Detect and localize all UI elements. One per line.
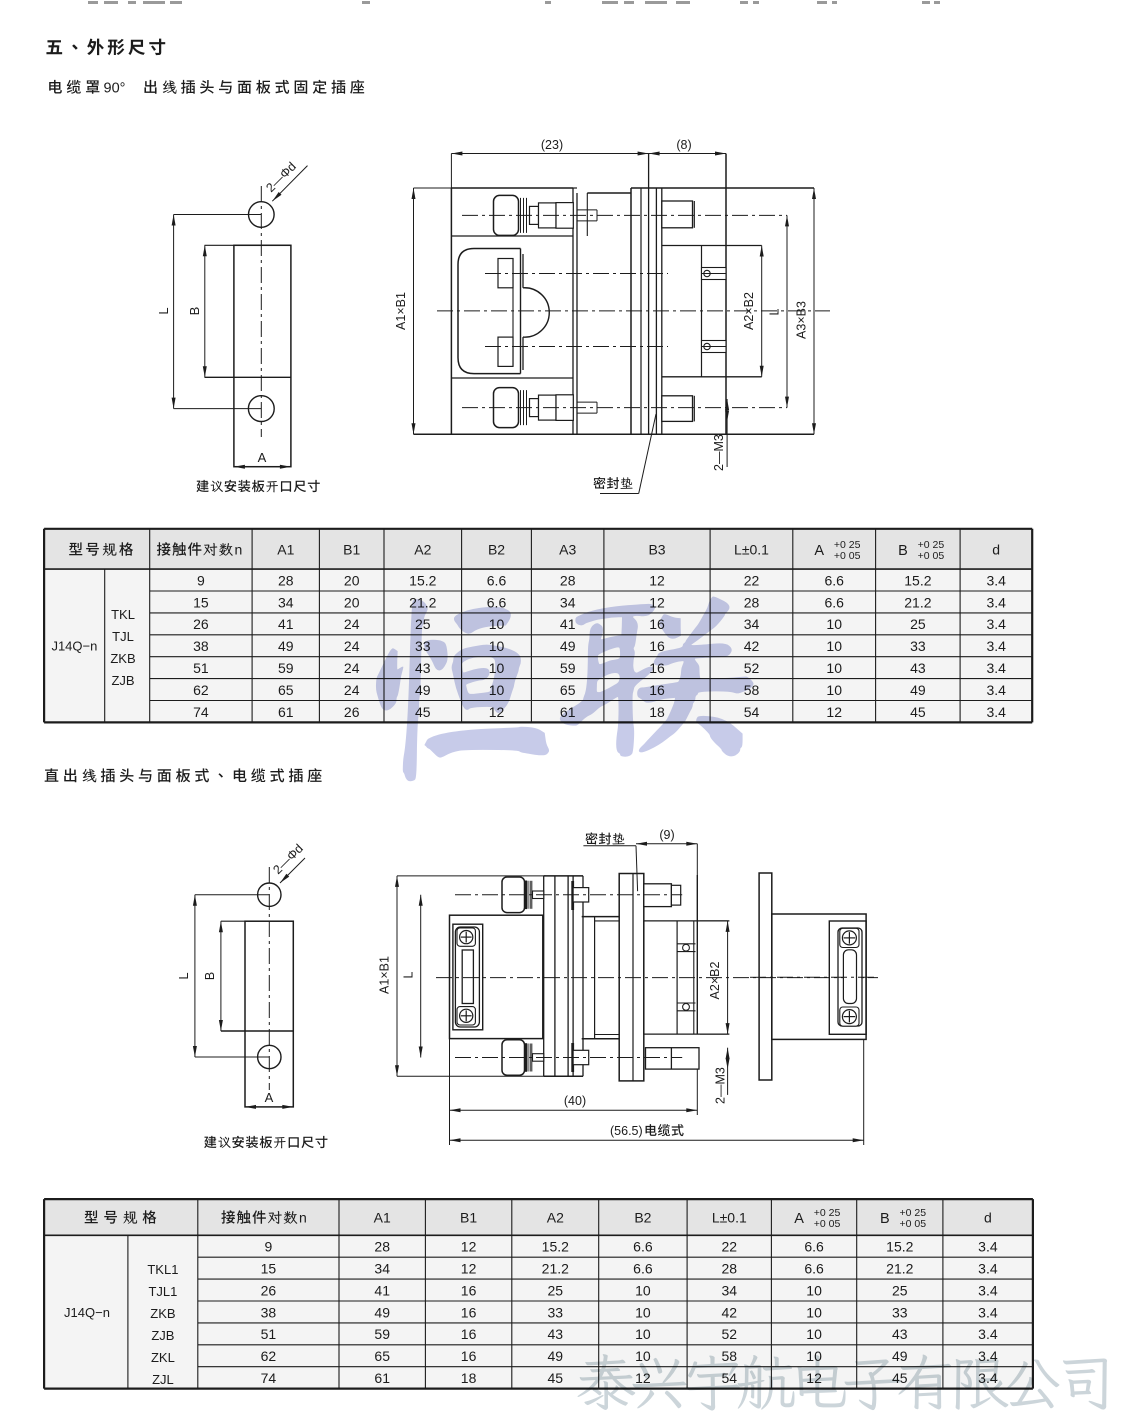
- svg-text:3.4: 3.4: [978, 1304, 998, 1320]
- svg-text:51: 51: [193, 660, 209, 676]
- svg-text:43: 43: [892, 1326, 908, 1342]
- svg-text:9: 9: [265, 1239, 273, 1255]
- svg-text:45: 45: [892, 1370, 908, 1386]
- svg-text:25: 25: [548, 1282, 564, 1298]
- svg-text:A: A: [794, 1211, 804, 1227]
- svg-text:TKL: TKL: [111, 607, 135, 622]
- svg-text:74: 74: [193, 704, 209, 720]
- svg-text:A3: A3: [559, 542, 576, 558]
- svg-text:18: 18: [649, 704, 665, 720]
- svg-text:34: 34: [278, 594, 294, 610]
- svg-text:42: 42: [744, 638, 760, 654]
- svg-text:54: 54: [722, 1370, 738, 1386]
- svg-text:A2: A2: [547, 1210, 564, 1226]
- svg-text:34: 34: [722, 1282, 738, 1298]
- svg-text:51: 51: [261, 1326, 277, 1342]
- svg-text:A1×B1: A1×B1: [378, 956, 392, 994]
- svg-text:21.2: 21.2: [886, 1261, 913, 1277]
- svg-text:2—M3: 2—M3: [714, 1067, 728, 1104]
- svg-text:24: 24: [344, 682, 360, 698]
- svg-text:L: L: [176, 972, 191, 979]
- svg-text:ZJL: ZJL: [152, 1372, 174, 1387]
- svg-text:16: 16: [461, 1304, 477, 1320]
- svg-text:65: 65: [374, 1348, 390, 1364]
- svg-text:62: 62: [193, 682, 209, 698]
- svg-text:B1: B1: [460, 1210, 477, 1226]
- svg-text:10: 10: [806, 1348, 822, 1364]
- svg-text:6.6: 6.6: [633, 1261, 653, 1277]
- svg-text:3.4: 3.4: [986, 616, 1006, 632]
- svg-text:49: 49: [548, 1348, 564, 1364]
- svg-text:(9): (9): [659, 828, 674, 842]
- svg-text:ZKB: ZKB: [150, 1306, 175, 1321]
- svg-text:B: B: [187, 307, 202, 316]
- svg-text:10: 10: [635, 1326, 651, 1342]
- svg-text:10: 10: [635, 1304, 651, 1320]
- svg-text:3.4: 3.4: [978, 1282, 998, 1298]
- svg-text:52: 52: [722, 1326, 738, 1342]
- svg-text:L: L: [156, 307, 171, 314]
- svg-text:61: 61: [374, 1370, 390, 1386]
- svg-text:65: 65: [560, 682, 576, 698]
- svg-text:A2×B2: A2×B2: [708, 962, 722, 1000]
- svg-text:A: A: [258, 450, 267, 465]
- svg-text:74: 74: [261, 1370, 277, 1386]
- svg-text:28: 28: [278, 572, 294, 588]
- svg-text:21.2: 21.2: [904, 594, 931, 610]
- svg-text:59: 59: [560, 660, 576, 676]
- svg-text:+0 05: +0 05: [918, 550, 945, 562]
- svg-text:3.4: 3.4: [986, 704, 1006, 720]
- svg-text:ZJB: ZJB: [151, 1328, 174, 1343]
- svg-text:L±0.1: L±0.1: [734, 542, 769, 558]
- svg-text:(23): (23): [541, 138, 563, 152]
- svg-text:26: 26: [344, 704, 360, 720]
- svg-text:10: 10: [826, 682, 842, 698]
- svg-text:24: 24: [344, 638, 360, 654]
- svg-text:62: 62: [261, 1348, 277, 1364]
- svg-text:B2: B2: [488, 542, 505, 558]
- svg-text:+0 05: +0 05: [834, 550, 861, 562]
- svg-text:10: 10: [826, 616, 842, 632]
- svg-text:6.6: 6.6: [804, 1239, 824, 1255]
- svg-text:25: 25: [910, 616, 926, 632]
- svg-text:58: 58: [722, 1348, 738, 1364]
- svg-text:26: 26: [261, 1282, 277, 1298]
- svg-text:ZKB: ZKB: [110, 651, 135, 666]
- svg-text:3.4: 3.4: [978, 1326, 998, 1342]
- svg-text:TJL: TJL: [112, 629, 134, 644]
- svg-text:(56.5): (56.5): [610, 1124, 643, 1138]
- svg-text:(8): (8): [676, 138, 691, 152]
- svg-text:B3: B3: [648, 542, 665, 558]
- svg-text:15.2: 15.2: [409, 572, 436, 588]
- svg-text:TJL1: TJL1: [148, 1284, 177, 1299]
- svg-text:45: 45: [548, 1370, 564, 1386]
- svg-text:49: 49: [910, 682, 926, 698]
- svg-text:49: 49: [560, 638, 576, 654]
- svg-text:41: 41: [560, 616, 576, 632]
- svg-text:18: 18: [461, 1370, 477, 1386]
- svg-text:A2×B2: A2×B2: [742, 292, 756, 330]
- svg-text:6.6: 6.6: [824, 594, 844, 610]
- svg-text:28: 28: [560, 572, 576, 588]
- svg-text:B: B: [203, 972, 217, 980]
- svg-text:ZKL: ZKL: [151, 1350, 175, 1365]
- svg-text:10: 10: [635, 1282, 651, 1298]
- svg-text:L: L: [402, 971, 416, 978]
- svg-text:41: 41: [278, 616, 294, 632]
- svg-text:10: 10: [806, 1326, 822, 1342]
- svg-text:J14Q−n: J14Q−n: [51, 639, 97, 654]
- svg-text:26: 26: [193, 616, 209, 632]
- svg-text:59: 59: [374, 1326, 390, 1342]
- svg-text:34: 34: [744, 616, 760, 632]
- svg-text:A: A: [265, 1090, 274, 1105]
- svg-text:A2: A2: [414, 542, 431, 558]
- svg-text:TKL1: TKL1: [147, 1262, 178, 1277]
- svg-text:n: n: [235, 542, 243, 558]
- svg-text:16: 16: [461, 1348, 477, 1364]
- svg-text:43: 43: [910, 660, 926, 676]
- svg-text:15.2: 15.2: [904, 572, 931, 588]
- svg-text:10: 10: [635, 1348, 651, 1364]
- svg-text:28: 28: [744, 594, 760, 610]
- svg-text:A: A: [814, 543, 824, 559]
- svg-text:25: 25: [892, 1282, 908, 1298]
- svg-text:24: 24: [344, 616, 360, 632]
- svg-text:34: 34: [374, 1261, 390, 1277]
- svg-text:21.2: 21.2: [542, 1261, 569, 1277]
- svg-text:28: 28: [374, 1239, 390, 1255]
- svg-text:34: 34: [560, 594, 576, 610]
- svg-text:6.6: 6.6: [804, 1261, 824, 1277]
- svg-text:10: 10: [826, 638, 842, 654]
- svg-text:42: 42: [722, 1304, 738, 1320]
- svg-text:10: 10: [806, 1282, 822, 1298]
- svg-text:d: d: [984, 1210, 992, 1226]
- svg-text:12: 12: [461, 1261, 477, 1277]
- svg-text:24: 24: [344, 660, 360, 676]
- svg-text:38: 38: [193, 638, 209, 654]
- svg-text:33: 33: [892, 1304, 908, 1320]
- svg-text:33: 33: [910, 638, 926, 654]
- svg-text:ZJB: ZJB: [111, 673, 134, 688]
- svg-text:15: 15: [193, 594, 209, 610]
- svg-text:3.4: 3.4: [986, 594, 1006, 610]
- svg-text:6.6: 6.6: [487, 572, 507, 588]
- svg-text:6.6: 6.6: [824, 572, 844, 588]
- svg-text:16: 16: [461, 1282, 477, 1298]
- svg-text:9: 9: [197, 572, 205, 588]
- svg-text:10: 10: [826, 660, 842, 676]
- svg-text:28: 28: [722, 1261, 738, 1277]
- svg-text:12: 12: [649, 572, 665, 588]
- svg-text:+0 05: +0 05: [900, 1218, 927, 1230]
- svg-text:3.4: 3.4: [986, 682, 1006, 698]
- svg-text:61: 61: [278, 704, 294, 720]
- svg-text:B2: B2: [634, 1210, 651, 1226]
- svg-text:90°: 90°: [104, 81, 126, 97]
- svg-text:3.4: 3.4: [986, 660, 1006, 676]
- svg-text:A1: A1: [374, 1210, 391, 1226]
- svg-text:3.4: 3.4: [978, 1239, 998, 1255]
- svg-text:B: B: [898, 543, 908, 559]
- svg-text:3.4: 3.4: [986, 572, 1006, 588]
- svg-text:16: 16: [461, 1326, 477, 1342]
- svg-text:22: 22: [722, 1239, 738, 1255]
- svg-text:38: 38: [261, 1304, 277, 1320]
- svg-text:d: d: [992, 542, 1000, 558]
- svg-text:+0 05: +0 05: [814, 1218, 841, 1230]
- svg-text:65: 65: [278, 682, 294, 698]
- svg-text:12: 12: [826, 704, 842, 720]
- svg-text:15.2: 15.2: [886, 1239, 913, 1255]
- svg-text:6.6: 6.6: [633, 1239, 653, 1255]
- svg-text:54: 54: [744, 704, 760, 720]
- svg-text:B1: B1: [343, 542, 360, 558]
- svg-text:49: 49: [374, 1304, 390, 1320]
- svg-text:A1×B1: A1×B1: [394, 292, 408, 330]
- svg-text:49: 49: [892, 1348, 908, 1364]
- svg-text:59: 59: [278, 660, 294, 676]
- svg-text:2—M3: 2—M3: [712, 434, 726, 471]
- svg-text:(40): (40): [564, 1094, 586, 1108]
- svg-text:B: B: [880, 1211, 890, 1227]
- svg-text:15: 15: [261, 1261, 277, 1277]
- svg-text:33: 33: [548, 1304, 564, 1320]
- svg-text:10: 10: [806, 1304, 822, 1320]
- svg-text:41: 41: [374, 1282, 390, 1298]
- svg-text:15.2: 15.2: [542, 1239, 569, 1255]
- svg-text:22: 22: [744, 572, 760, 588]
- svg-text:J14Q−n: J14Q−n: [64, 1305, 110, 1320]
- svg-text:n: n: [299, 1210, 307, 1226]
- svg-text:20: 20: [344, 594, 360, 610]
- svg-text:52: 52: [744, 660, 760, 676]
- svg-text:20: 20: [344, 572, 360, 588]
- svg-text:49: 49: [278, 638, 294, 654]
- svg-text:A3×B3: A3×B3: [795, 301, 809, 339]
- svg-text:3.4: 3.4: [978, 1261, 998, 1277]
- svg-text:3.4: 3.4: [986, 638, 1006, 654]
- svg-text:45: 45: [910, 704, 926, 720]
- svg-text:A1: A1: [277, 542, 294, 558]
- svg-text:L: L: [768, 308, 782, 315]
- svg-text:L±0.1: L±0.1: [712, 1210, 747, 1226]
- svg-text:12: 12: [461, 1239, 477, 1255]
- svg-text:43: 43: [548, 1326, 564, 1342]
